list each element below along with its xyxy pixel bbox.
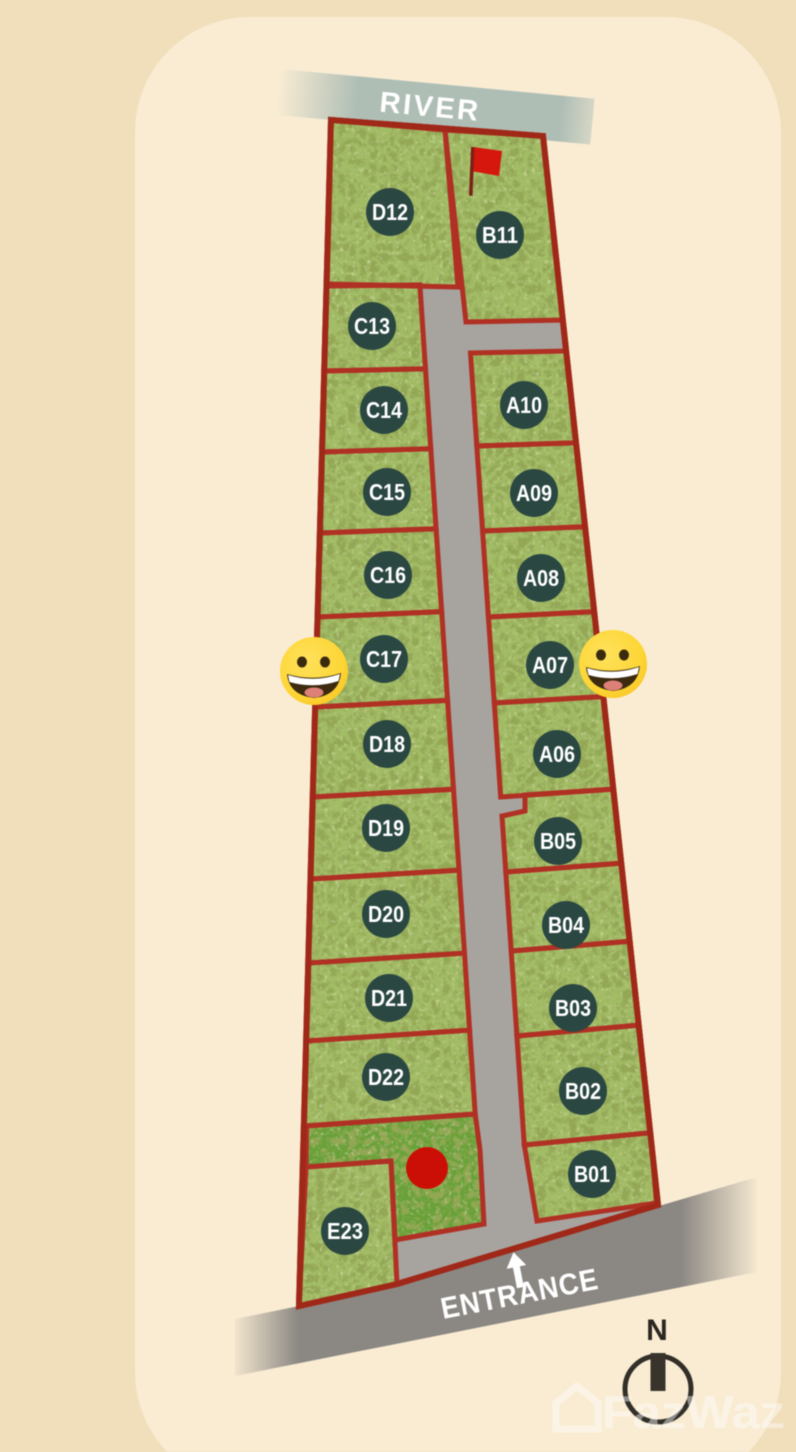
svg-text:A07: A07 bbox=[532, 652, 568, 678]
svg-text:D12: D12 bbox=[372, 199, 408, 225]
svg-text:B05: B05 bbox=[540, 828, 576, 854]
svg-text:C16: C16 bbox=[370, 562, 406, 588]
svg-text:E23: E23 bbox=[327, 1218, 363, 1244]
svg-text:A06: A06 bbox=[539, 741, 575, 767]
svg-text:B11: B11 bbox=[482, 222, 518, 248]
svg-text:A09: A09 bbox=[516, 480, 552, 506]
svg-text:D22: D22 bbox=[368, 1064, 404, 1090]
svg-text:B03: B03 bbox=[555, 995, 591, 1021]
svg-text:FazWaz: FazWaz bbox=[602, 1386, 785, 1438]
svg-text:A08: A08 bbox=[523, 565, 559, 591]
svg-text:B01: B01 bbox=[574, 1161, 610, 1187]
svg-text:B04: B04 bbox=[548, 912, 584, 938]
svg-text:D21: D21 bbox=[371, 985, 407, 1011]
svg-text:C15: C15 bbox=[369, 479, 405, 505]
svg-text:D19: D19 bbox=[368, 815, 404, 841]
svg-text:A10: A10 bbox=[506, 392, 542, 418]
svg-text:C13: C13 bbox=[354, 313, 390, 339]
svg-text:C14: C14 bbox=[366, 397, 402, 423]
svg-text:D18: D18 bbox=[369, 731, 405, 757]
svg-text:C17: C17 bbox=[366, 646, 402, 672]
svg-text:B02: B02 bbox=[565, 1078, 601, 1104]
svg-text:N: N bbox=[646, 1314, 668, 1347]
svg-text:D20: D20 bbox=[368, 901, 404, 927]
